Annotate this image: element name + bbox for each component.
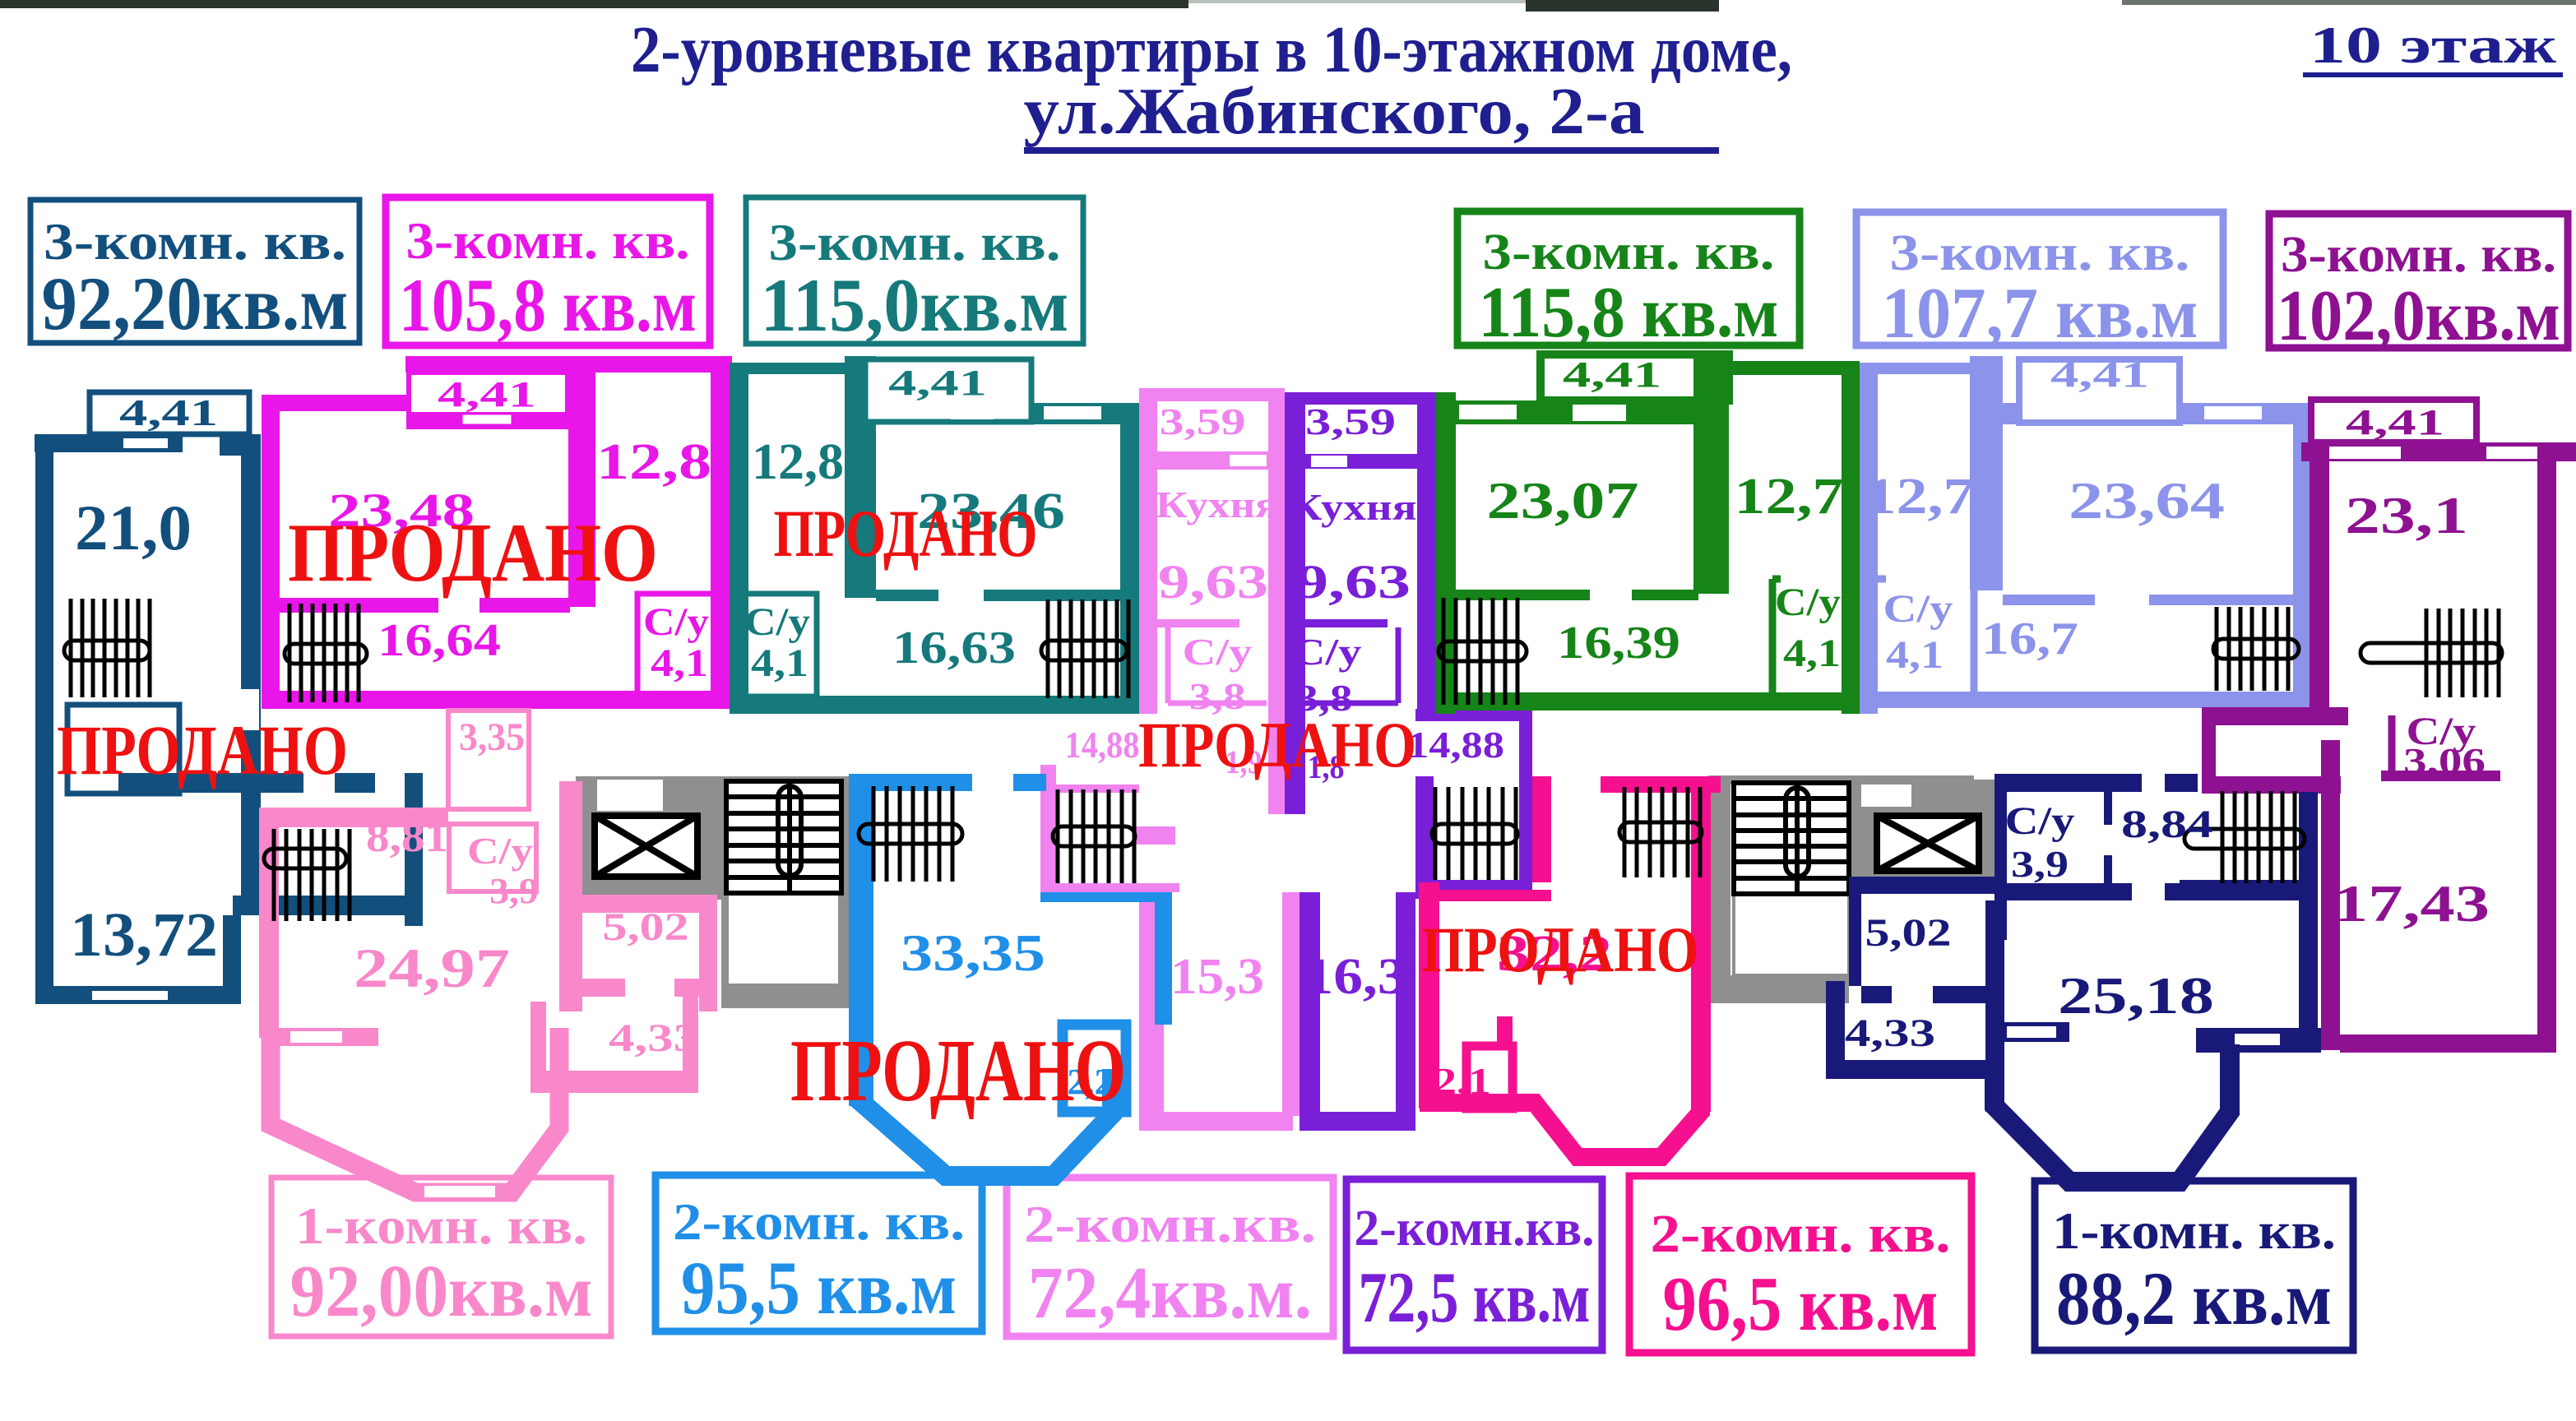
svg-text:88,2 кв.м: 88,2 кв.м: [2056, 1257, 2332, 1340]
svg-text:С/у: С/у: [744, 600, 810, 644]
svg-text:15,3: 15,3: [1170, 949, 1264, 1005]
svg-text:14,88: 14,88: [1407, 724, 1504, 766]
svg-text:ул.Жабинского, 2-а: ул.Жабинского, 2-а: [1024, 76, 1645, 148]
svg-text:4,1: 4,1: [751, 641, 808, 685]
svg-text:3,35: 3,35: [459, 715, 525, 759]
svg-text:24,97: 24,97: [354, 937, 510, 999]
svg-text:4,33: 4,33: [609, 1016, 699, 1060]
svg-text:4,41: 4,41: [1563, 354, 1661, 395]
svg-text:С/у: С/у: [1883, 587, 1953, 631]
svg-text:8,84: 8,84: [2121, 803, 2213, 846]
svg-text:2-комн. кв.: 2-комн. кв.: [673, 1192, 965, 1251]
svg-text:3,59: 3,59: [1160, 400, 1246, 442]
svg-text:25,18: 25,18: [2058, 966, 2214, 1025]
svg-text:3,59: 3,59: [1305, 400, 1396, 442]
svg-text:72,4кв.м.: 72,4кв.м.: [1028, 1252, 1312, 1334]
svg-text:115,0кв.м: 115,0кв.м: [761, 263, 1069, 347]
svg-text:ПРОДАНО: ПРОДАНО: [57, 710, 348, 789]
svg-text:13,72: 13,72: [70, 900, 218, 970]
svg-text:3,9: 3,9: [489, 871, 539, 911]
svg-text:4,41: 4,41: [888, 363, 987, 403]
svg-text:2-комн.кв.: 2-комн.кв.: [1355, 1201, 1595, 1257]
svg-text:ПРОДАНО: ПРОДАНО: [790, 1022, 1126, 1120]
svg-text:107,7 кв.м: 107,7 кв.м: [1882, 274, 2198, 354]
svg-text:12,8: 12,8: [752, 434, 844, 490]
svg-text:3,06: 3,06: [2403, 741, 2486, 781]
svg-text:5,02: 5,02: [1865, 911, 1952, 955]
svg-text:3-комн. кв.: 3-комн. кв.: [2281, 227, 2556, 283]
svg-text:23,1: 23,1: [2345, 486, 2468, 544]
svg-text:9,63: 9,63: [1295, 555, 1411, 609]
svg-text:4,41: 4,41: [438, 374, 536, 414]
svg-text:4,41: 4,41: [119, 391, 218, 433]
svg-text:105,8 кв.м: 105,8 кв.м: [399, 263, 697, 347]
svg-text:ПРОДАНО: ПРОДАНО: [1422, 914, 1699, 985]
svg-text:2-комн.кв.: 2-комн.кв.: [1024, 1195, 1316, 1253]
svg-text:16,63: 16,63: [892, 623, 1016, 673]
svg-text:5,02: 5,02: [603, 905, 689, 949]
svg-text:ПРОДАНО: ПРОДАНО: [1138, 709, 1416, 780]
svg-text:4,1: 4,1: [651, 641, 708, 685]
svg-text:2-комн. кв.: 2-комн. кв.: [1651, 1204, 1951, 1264]
svg-text:16,39: 16,39: [1557, 618, 1680, 669]
svg-text:4,41: 4,41: [2050, 354, 2149, 395]
svg-text:115,8 кв.м: 115,8 кв.м: [1479, 273, 1779, 353]
svg-text:14,88: 14,88: [1065, 724, 1140, 766]
svg-text:92,00кв.м: 92,00кв.м: [290, 1251, 593, 1332]
svg-text:9,63: 9,63: [1158, 555, 1268, 609]
svg-text:С/у: С/у: [1775, 581, 1841, 624]
svg-text:3-комн. кв.: 3-комн. кв.: [1890, 225, 2190, 281]
svg-text:33,35: 33,35: [901, 923, 1045, 982]
svg-text:102,0кв.м: 102,0кв.м: [2277, 276, 2560, 356]
svg-text:4,33: 4,33: [1845, 1011, 1935, 1055]
svg-text:95,5 кв.м: 95,5 кв.м: [681, 1246, 957, 1330]
svg-text:3,9: 3,9: [2011, 843, 2069, 885]
svg-text:2,1: 2,1: [1434, 1060, 1491, 1102]
svg-text:4,1: 4,1: [1783, 632, 1841, 675]
svg-text:10 этаж: 10 этаж: [2310, 16, 2557, 74]
svg-text:3-комн. кв.: 3-комн. кв.: [1483, 224, 1775, 280]
svg-text:С/у: С/у: [2005, 799, 2075, 843]
svg-text:8,81: 8,81: [366, 814, 448, 861]
svg-text:Кухня: Кухня: [1156, 484, 1279, 525]
svg-text:С/у: С/у: [643, 600, 709, 644]
svg-text:16,7: 16,7: [1981, 613, 2078, 664]
svg-text:Кухня: Кухня: [1290, 486, 1417, 528]
svg-text:ПРОДАНО: ПРОДАНО: [288, 507, 658, 599]
svg-text:1-комн. кв.: 1-комн. кв.: [2052, 1201, 2336, 1260]
svg-text:92,20кв.м: 92,20кв.м: [42, 262, 349, 345]
svg-text:72,5 кв.м: 72,5 кв.м: [1359, 1258, 1591, 1338]
svg-text:3-комн. кв.: 3-комн. кв.: [406, 211, 690, 270]
svg-text:17,43: 17,43: [2333, 874, 2490, 933]
svg-text:12,7: 12,7: [1735, 469, 1844, 525]
svg-text:16,3: 16,3: [1304, 949, 1407, 1005]
svg-text:С/у: С/у: [1183, 631, 1253, 673]
svg-text:96,5 кв.м: 96,5 кв.м: [1663, 1261, 1939, 1347]
svg-text:23,64: 23,64: [2069, 471, 2225, 530]
svg-text:С/у: С/у: [1292, 631, 1362, 673]
svg-text:16,64: 16,64: [378, 615, 501, 666]
svg-text:4,41: 4,41: [2346, 402, 2444, 442]
svg-text:С/у: С/у: [467, 830, 533, 872]
svg-text:4,1: 4,1: [1886, 633, 1944, 677]
svg-text:12,7: 12,7: [1865, 469, 1975, 525]
svg-text:21,0: 21,0: [75, 492, 192, 563]
svg-text:12,8: 12,8: [596, 434, 711, 490]
svg-text:23,07: 23,07: [1487, 471, 1639, 530]
svg-text:ПРОДАНО: ПРОДАНО: [774, 496, 1038, 571]
svg-text:1-комн. кв.: 1-комн. кв.: [295, 1197, 587, 1255]
